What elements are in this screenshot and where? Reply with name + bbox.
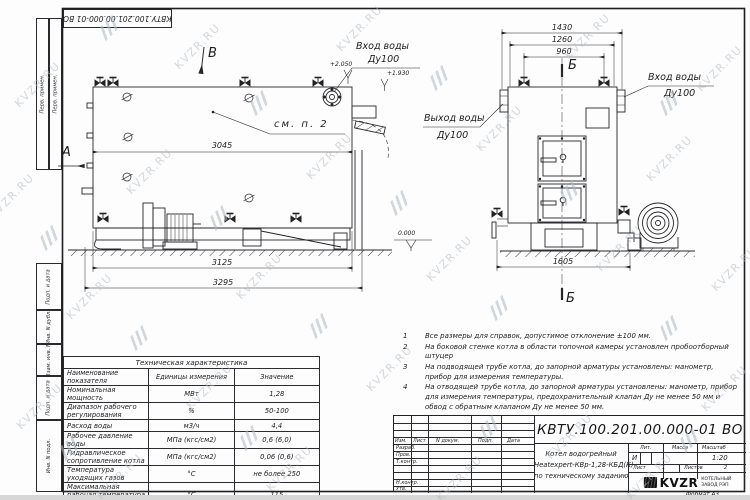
level-mark-zero: 0.000 — [398, 231, 415, 237]
spec-col-header: Единицы измерения — [149, 369, 234, 386]
notes-list: 1Все размеры для справок, допустимое отк… — [403, 332, 743, 412]
sidebar-label: Взам. инв. N — [46, 343, 52, 377]
stamp-col-dokum: N докум. — [436, 439, 459, 444]
stamp-col-data: Дата — [507, 439, 520, 444]
spec-cell: 50-100 — [234, 403, 319, 420]
dim-3125: 3125 — [212, 259, 232, 267]
sidebar-label: Инв. N подл. — [46, 439, 52, 473]
stamp-sheet-label: Лист — [633, 466, 646, 471]
front-outlet-label: Выход воды — [424, 114, 485, 124]
sidebar-label: Перв. примен. — [53, 75, 59, 114]
stamp-lit-label: Лит. — [640, 446, 652, 451]
stamp-mass-label: Масса — [672, 446, 688, 451]
spec-cell: Расход воды — [64, 420, 149, 432]
sidebar-cell-vzam: Взам. инв. N — [36, 344, 62, 376]
note-item: 2На боковой стенке котла в области топоч… — [403, 343, 743, 362]
spec-col-header: Наименование показателя — [64, 369, 149, 386]
spec-header-row: Наименование показателя Единицы измерени… — [64, 369, 320, 386]
sidebar-label: Подп. и дата — [46, 380, 52, 415]
spec-cell: м3/ч — [149, 420, 234, 432]
kvzr-flag-icon — [644, 477, 657, 488]
front-inlet-label: Вход воды — [648, 73, 701, 83]
front-inlet-dn: Ду100 — [664, 89, 695, 99]
spec-cell: Температура уходящих газов — [64, 466, 149, 483]
stamp-role-prov: Пров. — [396, 453, 411, 458]
spec-table-title: Техническая характеристика — [64, 357, 320, 369]
spec-row: Диапазон рабочего регулирования%50-100 — [64, 403, 320, 420]
sheet-edge — [0, 495, 750, 500]
spec-cell: Рабочее давление воды — [64, 432, 149, 449]
stamp-logo-cell: KVZR КОТЕЛЬНЫЙ ЗАВОД РЭП — [629, 472, 746, 493]
note-item: 3На подводящей трубе котла, до запорной … — [403, 363, 743, 382]
spec-cell: 0,06 (0,6) — [234, 449, 319, 466]
sidebar-label: Инв. N дубл. — [46, 310, 52, 344]
sidebar-cell-podp-2: Подп. и дата — [36, 376, 62, 420]
front-section-marker-top: Б — [568, 59, 577, 72]
spec-cell: °С — [149, 466, 234, 483]
front-section-marker-bottom: Б — [566, 292, 575, 305]
spec-table: Техническая характеристика Наименование … — [63, 356, 320, 500]
stamp-role-nkontr: Н.контр. — [396, 481, 418, 486]
spec-table-body: Номинальная мощностьМВт1,28Диапазон рабо… — [64, 386, 320, 500]
spec-cell: Диапазон рабочего регулирования — [64, 403, 149, 420]
note-text: На боковой стенке котла в области топочн… — [425, 343, 739, 362]
dim-1430: 1430 — [552, 24, 572, 32]
note-item: 4На отводящей трубе котла, до запорной а… — [403, 383, 743, 412]
spec-row: Гидравлическое сопротивление котлаМПа (к… — [64, 449, 320, 466]
note-text: Все размеры для справок, допустимое откл… — [425, 332, 739, 342]
stamp-role-razrab: Разраб. — [396, 446, 416, 451]
dim-3045: 3045 — [212, 142, 232, 150]
note-number: 1 — [403, 332, 425, 342]
kvzr-org-line1: КОТЕЛЬНЫЙ — [701, 477, 731, 483]
top-doc-number: КВТУ.100.201.00.000-01 ВО — [63, 14, 172, 23]
spec-cell: 4,4 — [234, 420, 319, 432]
stamp-doc-number: КВТУ.100.201.00.000-01 ВО — [537, 422, 743, 438]
spec-cell: 1,28 — [234, 386, 319, 403]
note-number: 3 — [403, 363, 425, 382]
spec-row: Рабочее давление водыМПа (кгс/см2)0,6 (6… — [64, 432, 320, 449]
stamp-col-list: Лист — [413, 439, 426, 444]
stamp-role-tkontr: Т.контр. — [396, 460, 418, 465]
side-section-marker-a: А — [62, 146, 71, 159]
kvzr-org-name: КОТЕЛЬНЫЙ ЗАВОД РЭП — [701, 477, 731, 488]
kvzr-org-line2: ЗАВОД РЭП — [701, 483, 731, 489]
spec-row: Номинальная мощностьМВт1,28 — [64, 386, 320, 403]
sidebar-cell-inv-podl: Инв. N подл. — [36, 420, 62, 492]
spec-title-row: Техническая характеристика — [64, 357, 320, 369]
sidebar-label: Подп. и дата — [46, 269, 52, 304]
sidebar-cell-perv-1: Перв. примен. — [36, 18, 49, 170]
see-note-ref: см. п. 2 — [274, 120, 329, 130]
stamp-sheets-label: Листов — [684, 466, 703, 471]
spec-cell: % — [149, 403, 234, 420]
stamp-product-title: Котел водогрейный Heatexpert-КВр-1,28-КБ… — [534, 444, 629, 493]
side-inlet-label: Вход воды — [356, 42, 409, 52]
sidebar-cell-inv-dubl: Инв. N дубл. — [36, 310, 62, 344]
note-text: На подводящей трубе котла, до запорной а… — [425, 363, 739, 382]
spec-row: Расход водым3/ч4,4 — [64, 420, 320, 432]
stamp-doc-number-box: КВТУ.100.201.00.000-01 ВО — [534, 416, 746, 444]
spec-cell: МВт — [149, 386, 234, 403]
dim-3295: 3295 — [213, 279, 233, 287]
stamp-lit-value: И — [632, 455, 637, 462]
spec-cell: Гидравлическое сопротивление котла — [64, 449, 149, 466]
level-mark-2050: +2.050 — [330, 62, 352, 68]
side-inlet-dn: Ду100 — [368, 55, 399, 65]
dim-1260: 1260 — [552, 36, 572, 44]
spec-cell: Номинальная мощность — [64, 386, 149, 403]
spec-cell: МПа (кгс/см2) — [149, 432, 234, 449]
level-mark-1930: +1.930 — [387, 71, 409, 77]
stamp-col-podp: Подп. — [478, 439, 493, 444]
sidebar-label: Перв. примен. — [40, 75, 46, 114]
stamp-scale-label: Масштаб — [702, 446, 726, 451]
spec-table-head: Техническая характеристика Наименование … — [64, 357, 320, 386]
stamp-sheets-value: 2 — [724, 466, 727, 471]
product-line-2: Heatexpert-КВр-1,28-КБД(К) — [534, 460, 628, 471]
spec-cell: МПа (кгс/см2) — [149, 449, 234, 466]
dim-1605: 1605 — [553, 258, 573, 266]
note-number: 4 — [403, 383, 425, 412]
note-item: 1Все размеры для справок, допустимое отк… — [403, 332, 743, 342]
stamp-col-izm: Изм. — [395, 439, 407, 444]
front-outlet-dn: Ду100 — [437, 131, 468, 141]
dim-960: 960 — [556, 48, 571, 56]
note-number: 2 — [403, 343, 425, 362]
sidebar-cell-perv-2: Перв. примен. — [49, 18, 62, 170]
stamp-sheet-value: 1 — [662, 466, 665, 471]
side-view-marker: В — [208, 47, 217, 60]
sidebar-cell-podp-1: Подп. и дата — [36, 263, 62, 310]
top-doc-number-box: КВТУ.100.201.00.000-01 ВО — [63, 9, 172, 28]
stamp-scale-value: 1:20 — [712, 455, 728, 462]
side-view — [58, 47, 420, 292]
title-block: Изм. Лист N докум. Подп. Дата Разраб. Пр… — [393, 415, 745, 492]
drawing-sheet: В А см. п. 2 3045 3125 3295 Вход воды Ду… — [0, 0, 750, 500]
note-text: На отводящей трубе котла, до запорной ар… — [425, 383, 739, 412]
spec-cell: не более 250 — [234, 466, 319, 483]
spec-col-header: Значение — [234, 369, 319, 386]
notes-block: 1Все размеры для справок, допустимое отк… — [403, 332, 743, 413]
stamp-role-utv: Утв. — [396, 487, 407, 492]
kvzr-logo-text: KVZR — [660, 476, 699, 490]
product-line-3: по техническому заданию — [534, 471, 628, 482]
spec-row: Температура уходящих газов°Сне более 250 — [64, 466, 320, 483]
spec-cell: 0,6 (6,0) — [234, 432, 319, 449]
product-line-1: Котел водогрейный — [534, 449, 628, 460]
